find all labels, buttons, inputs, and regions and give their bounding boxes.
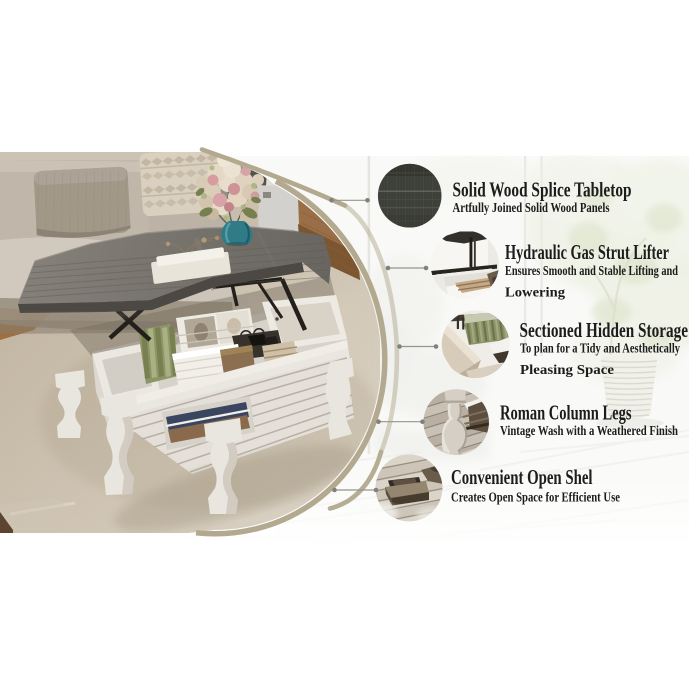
svg-text:Creates Open Space for Efficie: Creates Open Space for Efficient Use (451, 491, 620, 506)
svg-text:Roman Column Legs: Roman Column Legs (500, 400, 632, 424)
svg-text:Artfully Joined Solid Wood Pan: Artfully Joined Solid Wood Panels (453, 201, 610, 216)
svg-text:To plan for a Tidy and Aesthet: To plan for a Tidy and Aesthetically (520, 342, 680, 357)
svg-text:Vintage Wash with a Weathered: Vintage Wash with a Weathered Finish (500, 424, 678, 439)
svg-text:Lowering: Lowering (505, 286, 565, 301)
svg-text:Ensures Smooth and Stable Lift: Ensures Smooth and Stable Lifting and (505, 264, 678, 279)
svg-text:Pleasing Space: Pleasing Space (520, 363, 614, 378)
svg-text:Solid Wood Splice Tabletop: Solid Wood Splice Tabletop (453, 177, 632, 201)
svg-text:Sectioned Hidden Storage: Sectioned Hidden Storage (520, 318, 689, 342)
svg-text:Convenient Open Shel: Convenient Open Shel (451, 465, 593, 489)
svg-text:Hydraulic Gas Strut Lifter: Hydraulic Gas Strut Lifter (505, 240, 669, 264)
